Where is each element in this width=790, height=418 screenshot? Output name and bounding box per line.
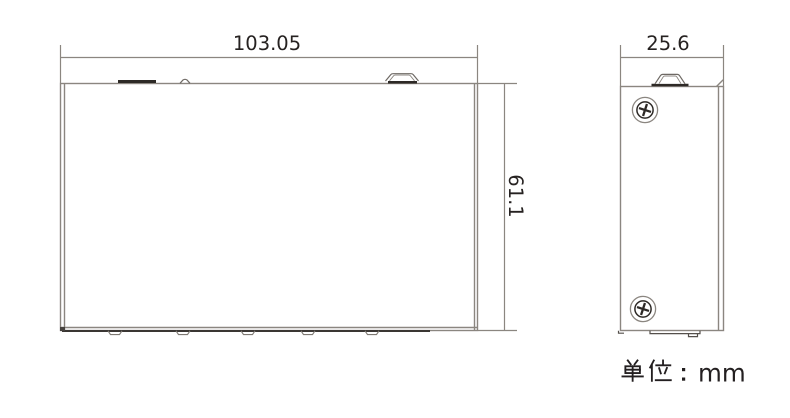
width-dimension-value: 103.05	[233, 32, 301, 55]
cjk-char-dan	[622, 360, 642, 380]
bottom-left-corner-mark	[60, 327, 65, 331]
front-panel-face	[61, 84, 478, 331]
side-view: 25.6	[619, 32, 724, 337]
front-panel-outline	[61, 84, 478, 331]
unit-note: mm	[622, 359, 745, 388]
height-dimension-value: 61.1	[504, 174, 527, 217]
screw-top-icon	[632, 97, 657, 122]
side-panel-face	[621, 87, 724, 331]
top-button	[386, 74, 419, 83]
front-view: 103.05	[60, 32, 527, 335]
side-bottom-foot	[619, 331, 701, 337]
drawing-svg: 103.05	[0, 0, 790, 418]
depth-dimension-value: 25.6	[646, 32, 689, 55]
cjk-char-wei	[650, 360, 671, 380]
dimension-drawing: 103.05	[0, 0, 790, 418]
side-top-button	[652, 74, 689, 85]
top-bump	[180, 79, 190, 83]
foot-strip	[650, 331, 700, 334]
unit-cjk-danwei	[622, 360, 670, 380]
unit-mm-label: mm	[698, 359, 746, 388]
unit-colon	[682, 368, 685, 381]
screw-bottom-icon	[630, 296, 655, 321]
top-right-chamfer	[717, 80, 724, 87]
